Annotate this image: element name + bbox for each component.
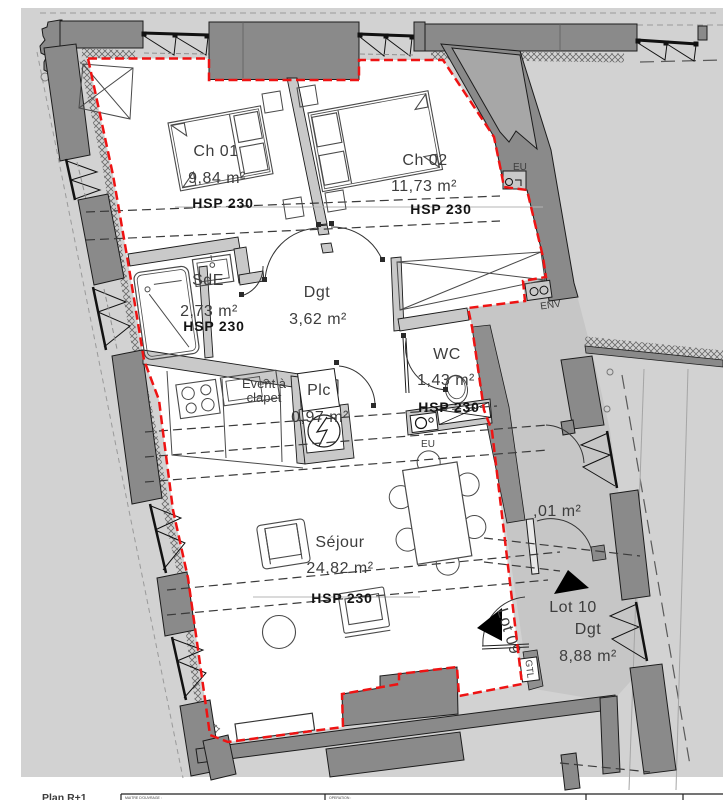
svg-text:GTL: GTL [522,659,535,679]
svg-text:HSP 230: HSP 230 [418,399,479,415]
svg-text:EU: EU [513,162,527,173]
svg-text:Lot 10: Lot 10 [549,599,596,616]
svg-text:clapet: clapet [247,390,282,405]
svg-text:HSP 230: HSP 230 [192,195,253,211]
svg-text:Séjour: Séjour [315,534,364,551]
svg-text:,01 m²: ,01 m² [533,503,582,520]
svg-text:Plan R+1: Plan R+1 [42,792,87,800]
svg-text:Ch 01: Ch 01 [193,143,238,160]
svg-text:HSP 230: HSP 230 [183,318,244,334]
svg-text:WC: WC [433,346,461,363]
svg-text:3,62 m²: 3,62 m² [289,311,347,328]
svg-text:0,97 m²: 0,97 m² [291,409,349,426]
svg-text:Ch 02: Ch 02 [402,152,447,169]
svg-text:Event à: Event à [242,376,287,391]
svg-text:24,82 m²: 24,82 m² [306,560,373,577]
svg-text:HSP 230: HSP 230 [410,201,471,217]
svg-text:Dgt: Dgt [575,621,601,638]
svg-text:OPERATION :: OPERATION : [329,796,351,800]
svg-text:HSP 230: HSP 230 [311,590,372,606]
svg-text:Dgt: Dgt [304,284,330,301]
svg-text:9,84 m²: 9,84 m² [188,170,246,187]
svg-text:8,88 m²: 8,88 m² [559,648,617,665]
svg-text:EU: EU [421,439,435,450]
svg-text:SdE: SdE [192,272,224,289]
svg-text:MAITRE D'OUVRAGE :: MAITRE D'OUVRAGE : [125,796,162,800]
svg-text:Plc: Plc [307,382,331,399]
svg-text:11,73 m²: 11,73 m² [391,178,457,195]
svg-text:1,43 m²: 1,43 m² [417,372,475,389]
